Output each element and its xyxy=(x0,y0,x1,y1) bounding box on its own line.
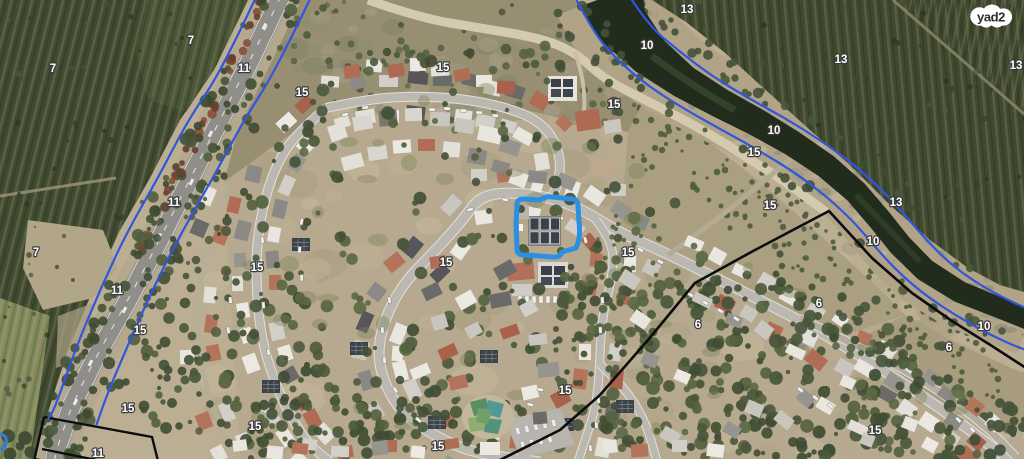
svg-text:15: 15 xyxy=(296,87,309,99)
svg-text:13: 13 xyxy=(890,197,903,209)
svg-text:6: 6 xyxy=(816,298,822,310)
svg-text:13: 13 xyxy=(681,4,694,16)
svg-text:15: 15 xyxy=(748,147,761,159)
svg-text:15: 15 xyxy=(559,385,572,397)
svg-text:10: 10 xyxy=(867,236,880,248)
svg-text:11: 11 xyxy=(238,63,251,75)
svg-text:15: 15 xyxy=(440,257,453,269)
svg-text:10: 10 xyxy=(768,125,781,137)
svg-text:15: 15 xyxy=(134,325,147,337)
svg-text:15: 15 xyxy=(608,99,621,111)
svg-text:15: 15 xyxy=(249,421,262,433)
svg-text:13: 13 xyxy=(835,54,848,66)
svg-text:13: 13 xyxy=(1010,60,1023,72)
svg-text:11: 11 xyxy=(92,448,105,459)
svg-text:10: 10 xyxy=(641,40,654,52)
svg-text:yad2: yad2 xyxy=(977,10,1005,25)
svg-text:7: 7 xyxy=(188,35,194,47)
svg-text:6: 6 xyxy=(946,342,952,354)
svg-text:7: 7 xyxy=(33,247,39,259)
svg-text:15: 15 xyxy=(122,403,135,415)
svg-text:11: 11 xyxy=(168,197,181,209)
svg-text:6: 6 xyxy=(695,319,701,331)
svg-text:15: 15 xyxy=(432,441,445,453)
svg-text:11: 11 xyxy=(111,285,124,297)
svg-text:7: 7 xyxy=(50,63,56,75)
svg-text:15: 15 xyxy=(869,425,882,437)
svg-text:15: 15 xyxy=(437,62,450,74)
svg-text:10: 10 xyxy=(978,321,991,333)
svg-text:15: 15 xyxy=(764,200,777,212)
svg-text:15: 15 xyxy=(251,262,264,274)
svg-text:15: 15 xyxy=(622,247,635,259)
